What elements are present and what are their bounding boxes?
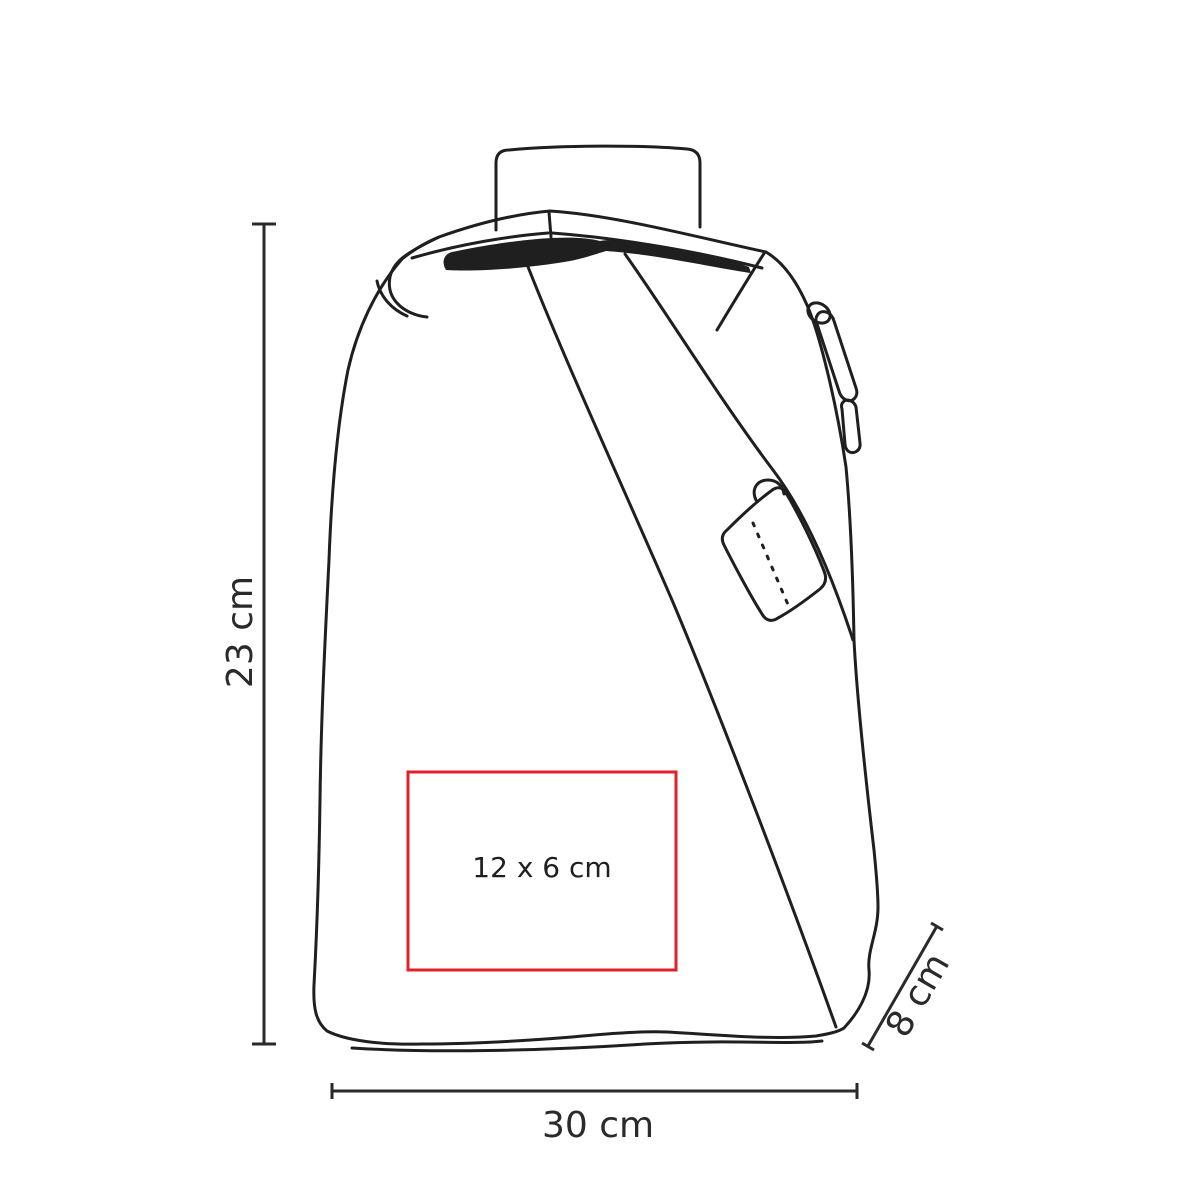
strap-patch-body xyxy=(722,488,825,621)
zipper-tail xyxy=(842,400,861,452)
width-dimension-line xyxy=(332,1083,857,1099)
base-seam-line xyxy=(352,1041,822,1051)
bag-dimension-diagram: 12 x 6 cm 23 cm 30 cm 8 cm xyxy=(0,0,1200,1200)
depth-dimension: 8 cm xyxy=(862,923,958,1050)
width-dimension-label: 30 cm xyxy=(542,1105,654,1146)
strap-patch-stitching xyxy=(753,523,789,607)
depth-dimension-label: 8 cm xyxy=(878,946,958,1044)
left-curl-stroke xyxy=(389,237,439,317)
height-dimension: 23 cm xyxy=(220,224,276,1044)
width-dimension: 30 cm xyxy=(332,1083,857,1146)
height-dimension-label: 23 cm xyxy=(220,576,261,688)
print-area: 12 x 6 cm xyxy=(408,772,676,970)
velcro-strip xyxy=(444,238,751,273)
print-area-label: 12 x 6 cm xyxy=(472,851,611,884)
strap-patch-flap xyxy=(754,480,784,500)
strap-left-edge xyxy=(523,254,836,1027)
dimension-diagram-canvas: 12 x 6 cm 23 cm 30 cm 8 cm xyxy=(0,0,1200,1200)
strap-patch xyxy=(722,480,825,620)
bag-outline xyxy=(314,211,878,1044)
bag-drawing xyxy=(314,146,878,1051)
